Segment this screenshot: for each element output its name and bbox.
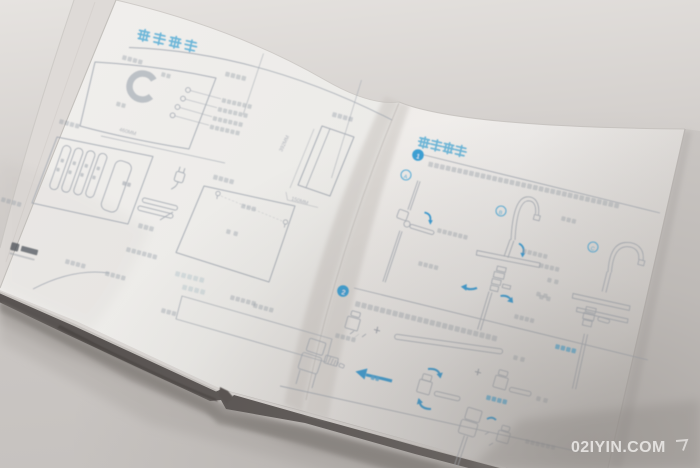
svg-text:02IYIN.COM: 02IYIN.COM xyxy=(571,439,666,456)
